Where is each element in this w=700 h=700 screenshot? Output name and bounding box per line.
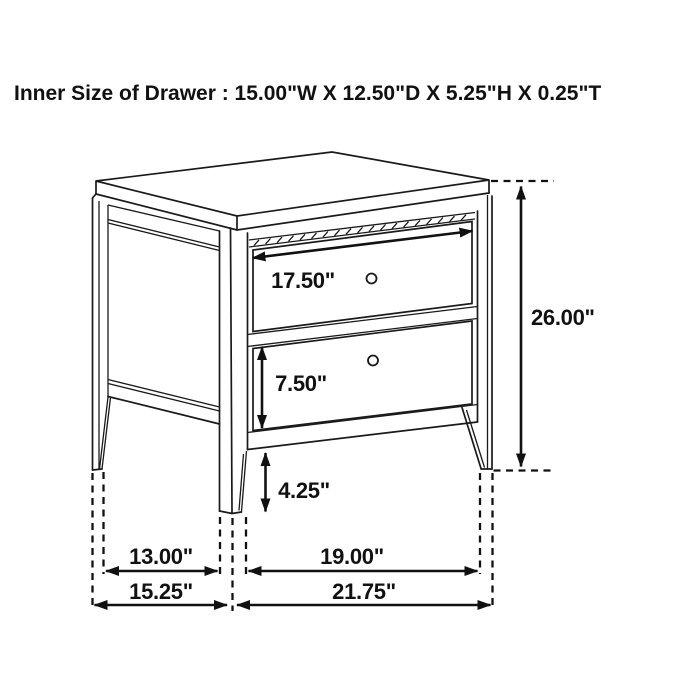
side-leg-span-label: 13.00"	[129, 544, 193, 569]
side-bottom-rail-upper	[108, 384, 220, 412]
nightstand-drawing: 17.50" 7.50" 4.25" 26.00" 13.00" 19.00" …	[0, 0, 700, 700]
dimension-side-leg-span: 13.00"	[106, 544, 218, 571]
bottom-drawer-height-label: 7.50"	[275, 371, 327, 396]
side-bottom-rail-lower	[108, 397, 220, 425]
side-top-rail-lower	[108, 220, 220, 248]
top-drawer-width-label: 17.50"	[271, 268, 335, 293]
dimension-diagram-page: Inner Size of Drawer : 15.00"W X 12.50"D…	[0, 0, 700, 700]
drawer-2-knob	[368, 356, 378, 366]
left-side-panel	[93, 194, 233, 513]
dimension-front-leg-span: 19.00"	[249, 544, 478, 571]
overall-height-label: 26.00"	[531, 305, 595, 330]
table-top-surface	[96, 152, 489, 216]
rear-left-foot	[93, 469, 103, 470]
overall-width-label: 21.75"	[332, 579, 396, 604]
drawer-front-face	[248, 211, 478, 450]
drawer-1-knob	[367, 274, 377, 284]
rear-left-leg-taper	[100, 397, 111, 469]
front-leg-span-label: 19.00"	[320, 544, 384, 569]
front-right-leg-facet	[467, 410, 485, 468]
side-panel-bevel-bottom	[108, 380, 220, 408]
front-left-leg-taper	[239, 451, 247, 512]
dimension-floor-clearance: 4.25"	[266, 453, 330, 512]
dimension-overall-width: 21.75"	[237, 579, 491, 605]
dimension-overall-depth: 15.25"	[95, 579, 228, 605]
floor-clearance-label: 4.25"	[278, 478, 330, 503]
rear-stile-outer-edge	[93, 194, 97, 470]
front-left-corner-edge	[231, 228, 233, 513]
front-left-foot	[220, 511, 242, 514]
dimension-overall-height: 26.00"	[521, 187, 595, 467]
overall-depth-label: 15.25"	[129, 579, 193, 604]
